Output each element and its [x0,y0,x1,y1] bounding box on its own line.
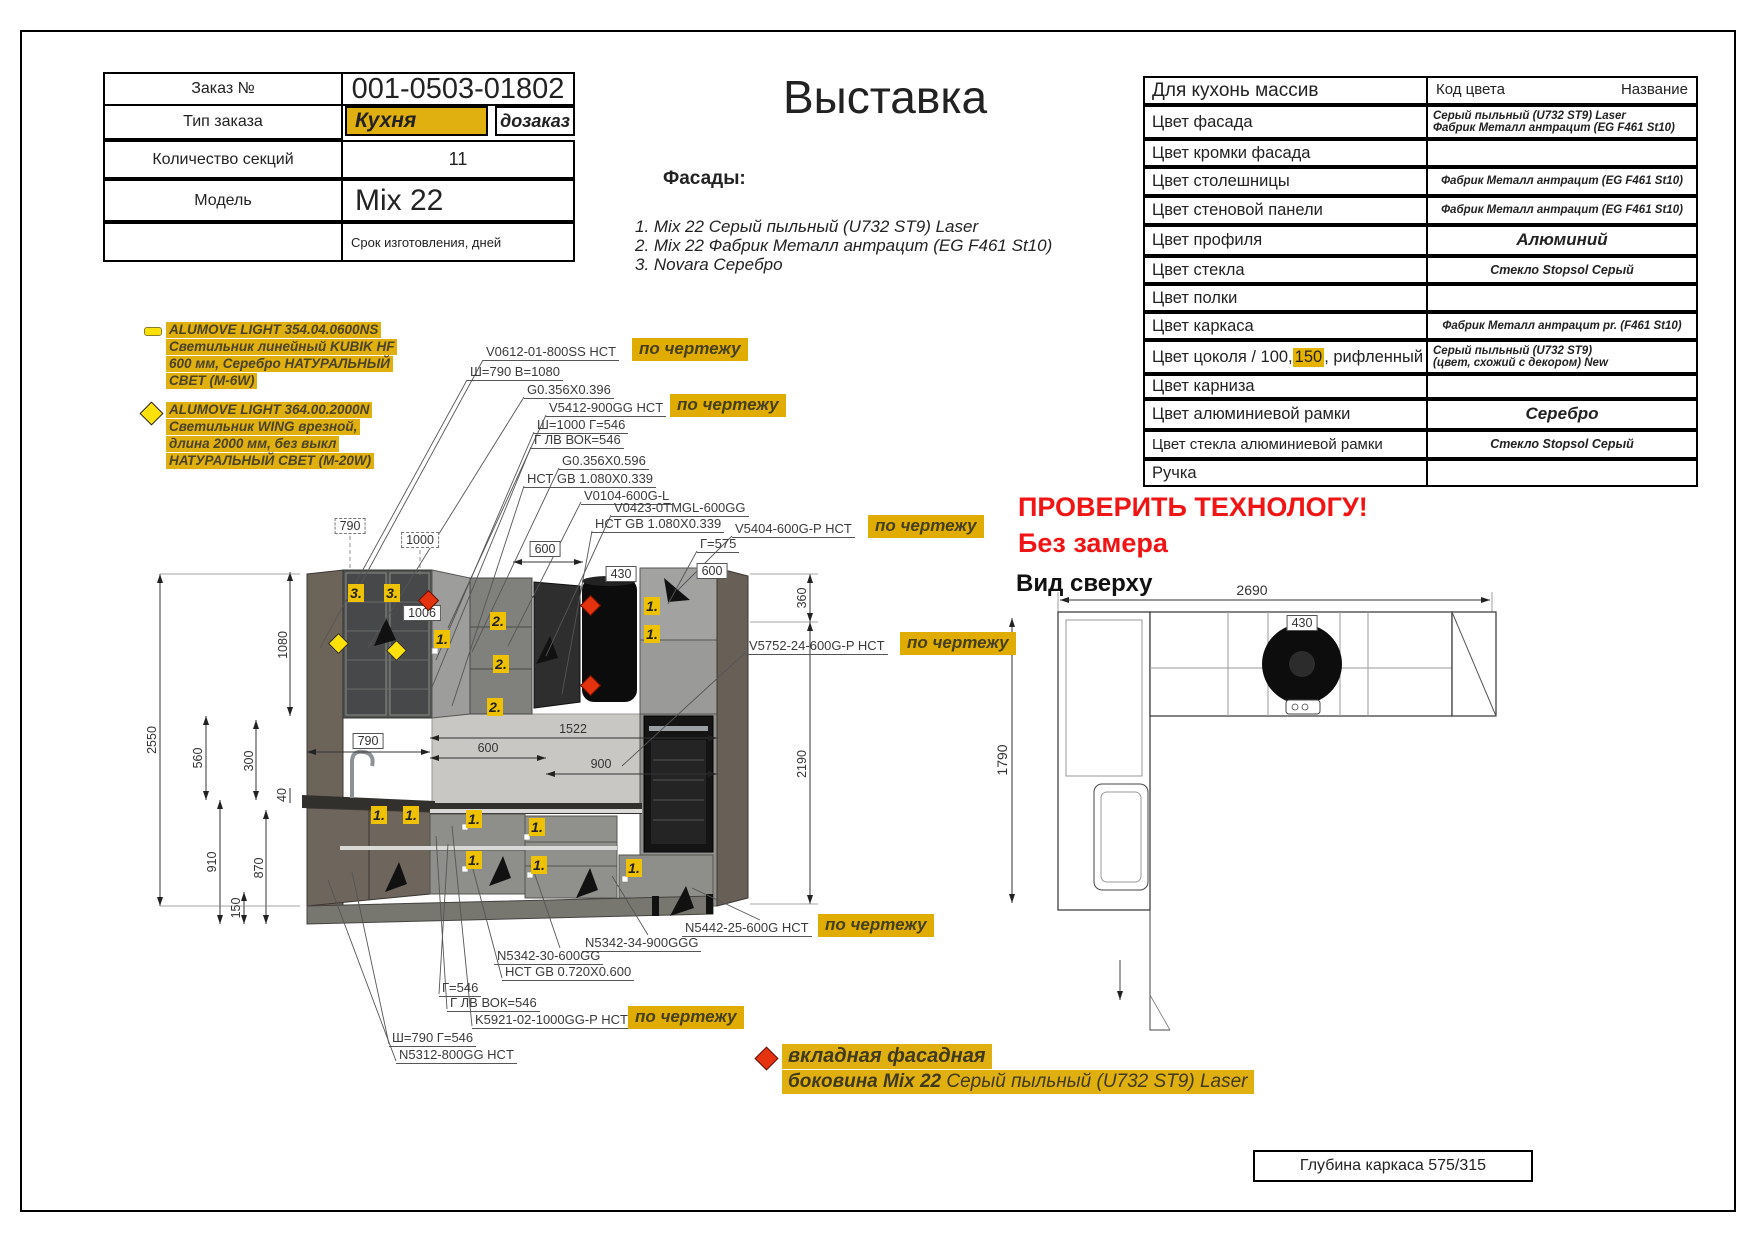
marker-badge-3: 3. [348,584,364,602]
callout-hl: по чертежу [628,1006,744,1029]
callout-v0423: V0423-0TMGL-600GG [611,500,749,517]
light-note-line: ALUMOVE LIGHT 354.04.0600NS [166,322,381,338]
light-bar-icon [144,327,162,336]
light-note-1: ALUMOVE LIGHT 354.04.0600NS Светильник л… [166,322,397,390]
top-view-plan [1012,592,1496,1030]
dim-label-790-sink: 790 [353,733,384,749]
callout-g0356x0596: G0.356X0.596 [559,453,649,470]
dim-label-1006: 1006 [403,605,441,621]
dim-label-430-topview: 430 [1287,615,1318,631]
light-note-line: НАТУРАЛЬНЫЙ СВЕТ (M-20W) [166,453,374,469]
callout-glv-546: Г ЛВ ВОК=546 [447,995,540,1012]
marker-badge-2: 2. [493,655,509,673]
callout-v5752: V5752-24-600G-P HCT [746,638,888,655]
dim-label-870: 870 [252,858,266,879]
dim-label-300: 300 [242,751,256,772]
dim-label-1522: 1522 [559,722,587,736]
side-note-line-2-bold: боковина Mix 22 [788,1071,941,1092]
facade-item-3: 3. Novara Серебро [635,255,1052,274]
callout-hct-gb-1080: HCT GB 1.080X0.339 [592,516,724,533]
dim-label-600-left: 600 [530,541,561,557]
dim-label-40: 40 [275,788,289,802]
marker-badge-2: 2. [487,698,503,716]
callout-g575: Г=575 [697,536,739,553]
callout-sh790: Ш=790 B=1080 [467,364,563,381]
callout-n5312: N5312-800GG HCT [396,1047,517,1064]
marker-badge-2: 2. [490,612,506,630]
callout-hl: по чертежу [632,338,748,361]
callout-v0612: V0612-01-800SS HCT [483,344,619,361]
facade-item-1: 1. Mix 22 Серый пыльный (U732 ST9) Laser [635,217,1052,236]
dim-label-1000-top: 1000 [401,532,439,548]
callout-hl: по чертежу [670,394,786,417]
callout-g0356x0396: G0.356X0.396 [524,382,614,399]
callout-k5921: K5921-02-1000GG-P HCT [472,1012,631,1029]
callout-v5412: V5412-900GG HCT [546,400,666,417]
dim-label-1790: 1790 [994,744,1010,775]
facade-item-2: 2. Mix 22 Фабрик Металл антрацит (EG F46… [635,236,1052,255]
light-note-line: Светильник WING врезной, [166,419,360,435]
marker-badge-3: 3. [384,584,400,602]
dim-label-430-hood: 430 [606,566,637,582]
dim-label-900: 900 [591,757,612,771]
marker-badge-1: 1. [531,856,547,874]
marker-badge-1: 1. [371,806,387,824]
marker-badge-1: 1. [529,818,545,836]
facades-heading: Фасады: [663,168,746,190]
callout-n5342-30: N5342-30-600GG [494,948,603,965]
callout-sh790-g546: Ш=790 Г=546 [389,1030,476,1047]
dim-label-560: 560 [191,748,205,769]
light-note-line: 600 мм, Серебро НАТУРАЛЬНЫЙ [166,356,393,372]
light-note-line: СВЕТ (M-6W) [166,373,257,389]
dim-label-600-mid: 600 [478,741,499,755]
marker-badge-1: 1. [434,630,450,648]
page-title: Выставка [783,70,987,124]
dim-label-790-top: 790 [335,518,366,534]
dim-label-150: 150 [229,898,243,919]
callout-glv546: Г ЛВ ВОК=546 [531,432,624,449]
marker-badge-1: 1. [644,625,660,643]
callout-v5404: V5404-600G-P HCT [732,521,855,538]
dim-label-2550: 2550 [145,726,159,754]
callout-hct-gb-0720: HCT GB 0.720X0.600 [502,964,634,981]
light-note-line: длина 2000 мм, без выкл [166,436,339,452]
marker-badge-1: 1. [644,597,660,615]
dim-label-1080: 1080 [276,631,290,659]
marker-badge-1: 1. [626,859,642,877]
callout-nst-gb-1080: НСТ GB 1.080X0.339 [524,471,656,488]
side-note-line-2-rest: Серый пыльный (U732 ST9) Laser [941,1071,1247,1092]
light-note-line: Светильник линейный KUBIK HF [166,339,397,355]
callout-hl: по чертежу [868,515,984,538]
dim-label-360: 360 [795,588,809,609]
dim-label-910: 910 [205,852,219,873]
callout-hl: по чертежу [818,914,934,937]
marker-badge-1: 1. [466,851,482,869]
light-note-2: ALUMOVE LIGHT 364.00.2000N Светильник WI… [166,402,374,470]
light-note-line: ALUMOVE LIGHT 364.00.2000N [166,402,372,418]
side-note-line-1: вкладная фасадная [782,1044,992,1069]
dim-label-2190: 2190 [795,750,809,778]
dim-label-600-right: 600 [697,563,728,579]
marker-badge-1: 1. [466,810,482,828]
dim-label-2690: 2690 [1236,582,1267,598]
marker-badge-1: 1. [403,806,419,824]
callout-hl: по чертежу [900,632,1016,655]
